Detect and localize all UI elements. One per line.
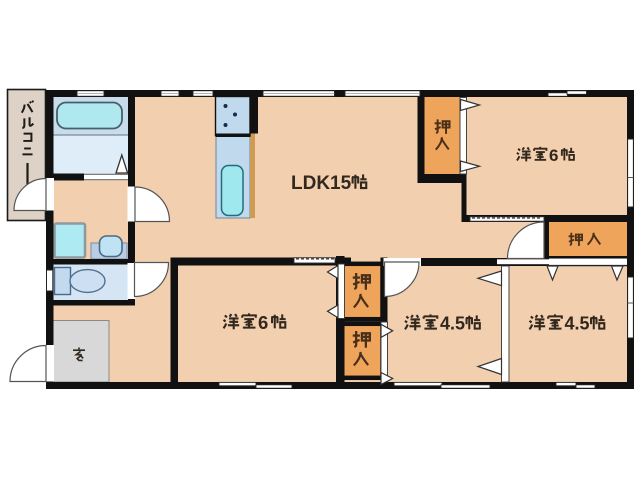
svg-text:4.5: 4.5	[565, 314, 590, 334]
svg-text:4.5: 4.5	[440, 314, 465, 334]
svg-text:6: 6	[549, 146, 558, 165]
svg-text:6: 6	[258, 312, 268, 333]
svg-text:LDK15: LDK15	[291, 173, 352, 194]
